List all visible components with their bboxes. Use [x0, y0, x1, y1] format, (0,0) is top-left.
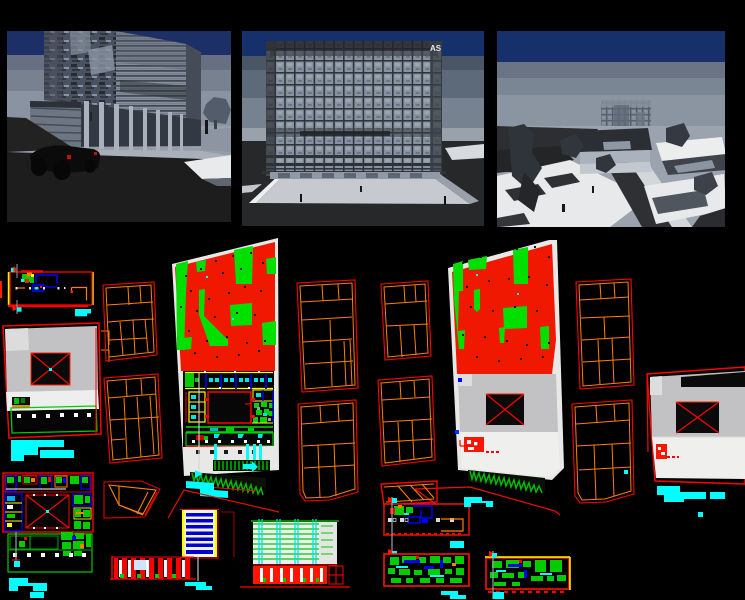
svg-text:AS: AS [430, 44, 442, 53]
